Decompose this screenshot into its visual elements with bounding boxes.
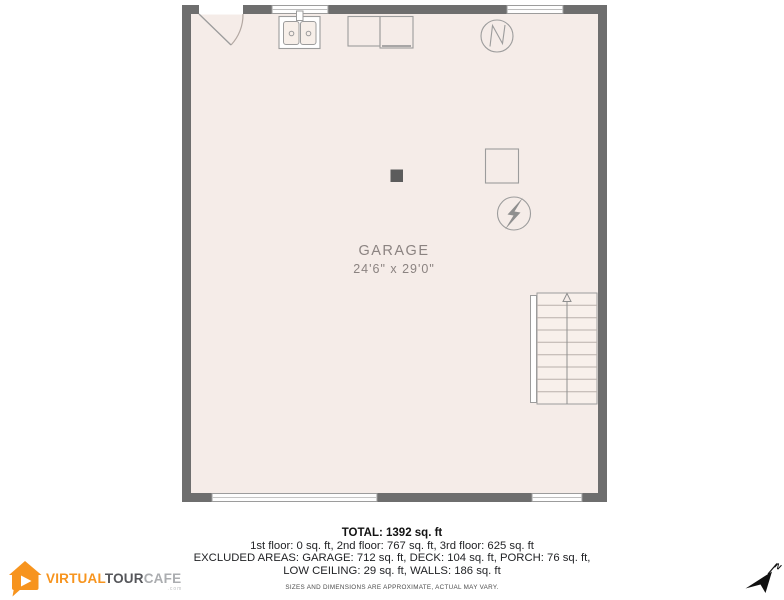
virtualtourcafe-logo: VIRTUALTOURCAFE .com xyxy=(9,561,181,597)
logo-text-tour: TOUR xyxy=(105,571,144,586)
room-name-label: GARAGE xyxy=(358,243,429,259)
stair-railing xyxy=(531,296,537,403)
logo-text-cafe: CAFE xyxy=(144,571,182,586)
support-post-icon xyxy=(391,170,404,183)
floor-plan-page: GARAGE 24'6" x 29'0" TOTAL: 1392 sq. ft … xyxy=(0,0,784,600)
room-dimensions-label: 24'6" x 29'0" xyxy=(353,262,435,276)
window-bottom-right-icon xyxy=(532,494,582,502)
north-label: N xyxy=(773,561,783,572)
garage-door-icon xyxy=(212,494,377,502)
floor-plan-drawing: GARAGE 24'6" x 29'0" xyxy=(0,0,784,600)
staircase-icon xyxy=(531,293,598,404)
logo-wordmark: VIRTUALTOURCAFE .com xyxy=(46,561,181,588)
floor-areas-text: 1st floor: 0 sq. ft, 2nd floor: 767 sq. … xyxy=(0,540,784,552)
sink-icon xyxy=(279,11,320,49)
north-arrow-icon: N xyxy=(741,555,784,600)
logo-text-com: .com xyxy=(167,586,182,592)
total-area-text: TOTAL: 1392 sq. ft xyxy=(0,527,784,540)
logo-text-virtual: VIRTUAL xyxy=(46,571,105,586)
logo-house-icon xyxy=(9,561,42,597)
window-top-right-icon xyxy=(507,6,563,14)
door-opening xyxy=(199,4,243,15)
